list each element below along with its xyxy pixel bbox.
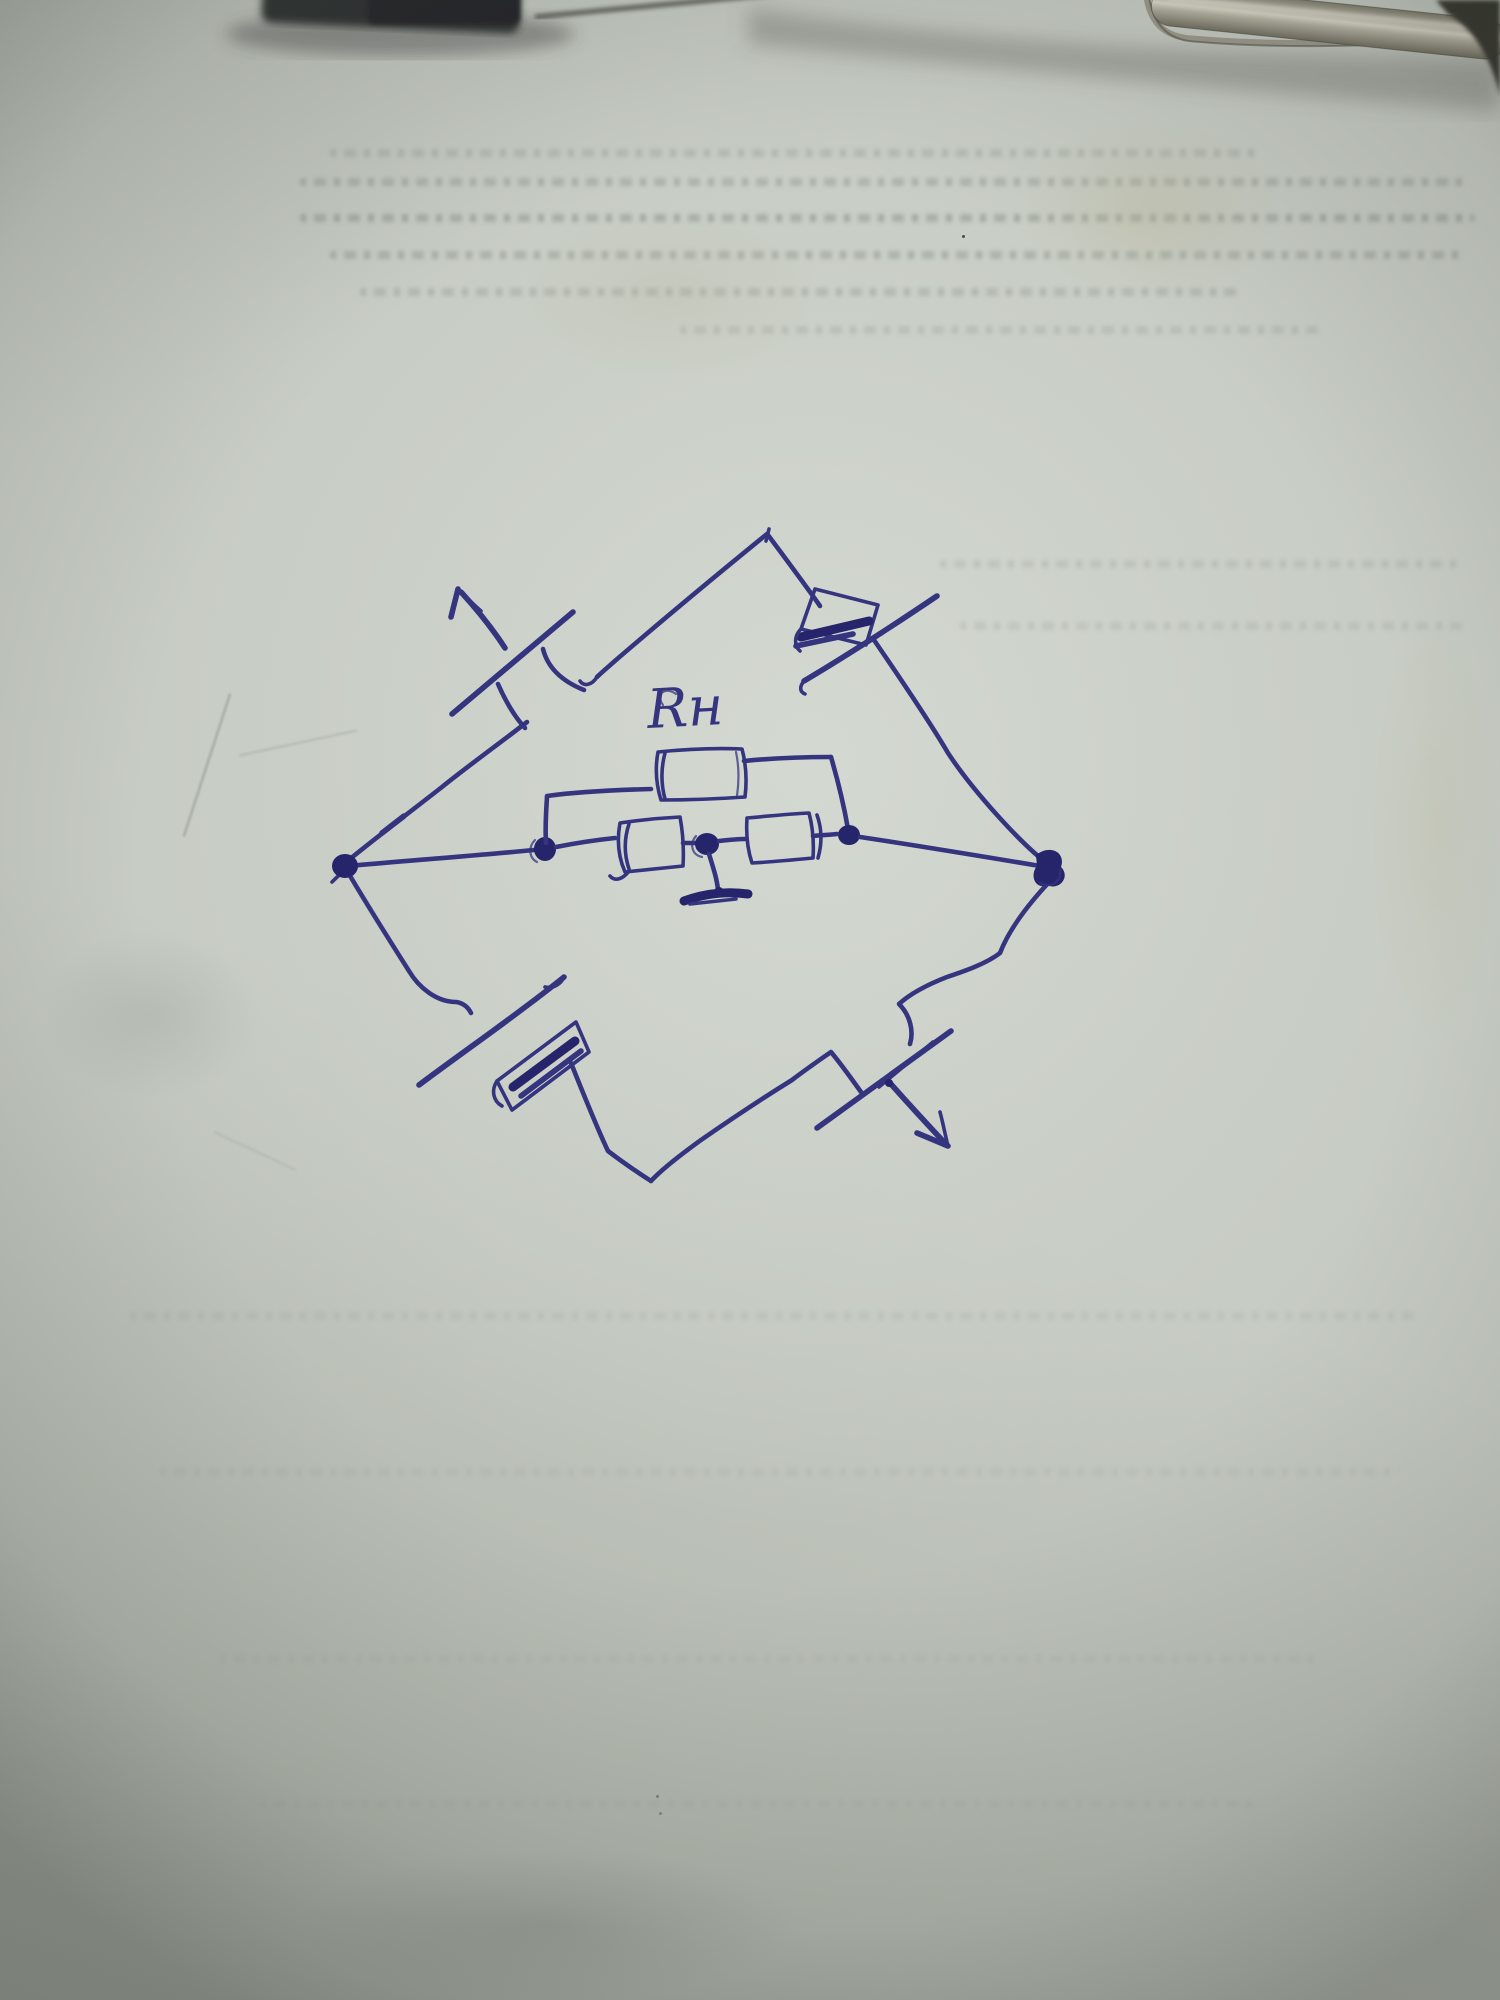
dark-clamp-top-left: [225, 0, 770, 56]
circuit-sketch: Rн: [332, 529, 1065, 1181]
riser: [546, 797, 547, 843]
mid-link-3: [813, 834, 837, 836]
connector-break-lower-right: [817, 1031, 951, 1146]
drop-to-node3: [831, 757, 848, 829]
photo-of-paper-sheet: Rн: [0, 0, 1500, 2000]
diamond-edges: [332, 529, 1052, 1181]
run-to-drop: [744, 757, 831, 761]
edge-bottom-left-upper: [346, 869, 471, 1013]
current-arrow-barb: [458, 589, 481, 611]
break-tick: [498, 684, 525, 728]
rail-from-left-vertex: [348, 850, 534, 866]
node-3: [838, 825, 860, 845]
metal-clip-arm-top-right: [748, 0, 1500, 112]
ground-symbol: [684, 854, 748, 904]
series-box-right: [747, 813, 814, 863]
break-slash: [452, 612, 573, 714]
inner-network: [348, 749, 1040, 904]
mid-link-2: [719, 839, 745, 841]
edge-top-left-upper: [597, 534, 767, 677]
break-arc: [543, 649, 584, 690]
current-arrow-barb: [451, 589, 458, 617]
slash-hook: [801, 681, 805, 694]
edge-top-left-lower: [345, 722, 527, 863]
load-box-left-double: [662, 753, 665, 799]
edge-overstroke: [382, 816, 404, 833]
load-resistor-box: [656, 749, 746, 800]
thin-rod-top-center: [535, 0, 770, 17]
left-vertex-blob: [332, 854, 358, 878]
mid-run-1: [556, 838, 615, 847]
edge-hook: [580, 677, 597, 684]
edge-bottom-left-lower: [571, 1063, 651, 1181]
run-to-right-vertex: [860, 837, 1040, 866]
diode-box-lower-left: [419, 977, 589, 1110]
load-box-right-inner: [736, 752, 738, 796]
edge-bottom-right-upper: [899, 879, 1052, 1044]
load-resistor-label: Rн: [644, 674, 724, 741]
ground-knot: [714, 887, 724, 897]
top-run: [547, 789, 651, 796]
node-2: [695, 833, 719, 855]
arrow-start-dot: [885, 1079, 893, 1087]
diode-box-heavy-bar: [801, 621, 869, 637]
series-box-left-double: [625, 824, 629, 869]
series-box-left-tail: [610, 871, 629, 879]
clamp-core: [368, 0, 520, 24]
sketch-svg: Rн: [0, 0, 1500, 2000]
ground-stem: [709, 854, 718, 890]
right-vertex-blob: [1034, 850, 1065, 887]
connector-break-upper-left: [451, 589, 584, 728]
edge-top-right-lower: [874, 640, 1048, 864]
